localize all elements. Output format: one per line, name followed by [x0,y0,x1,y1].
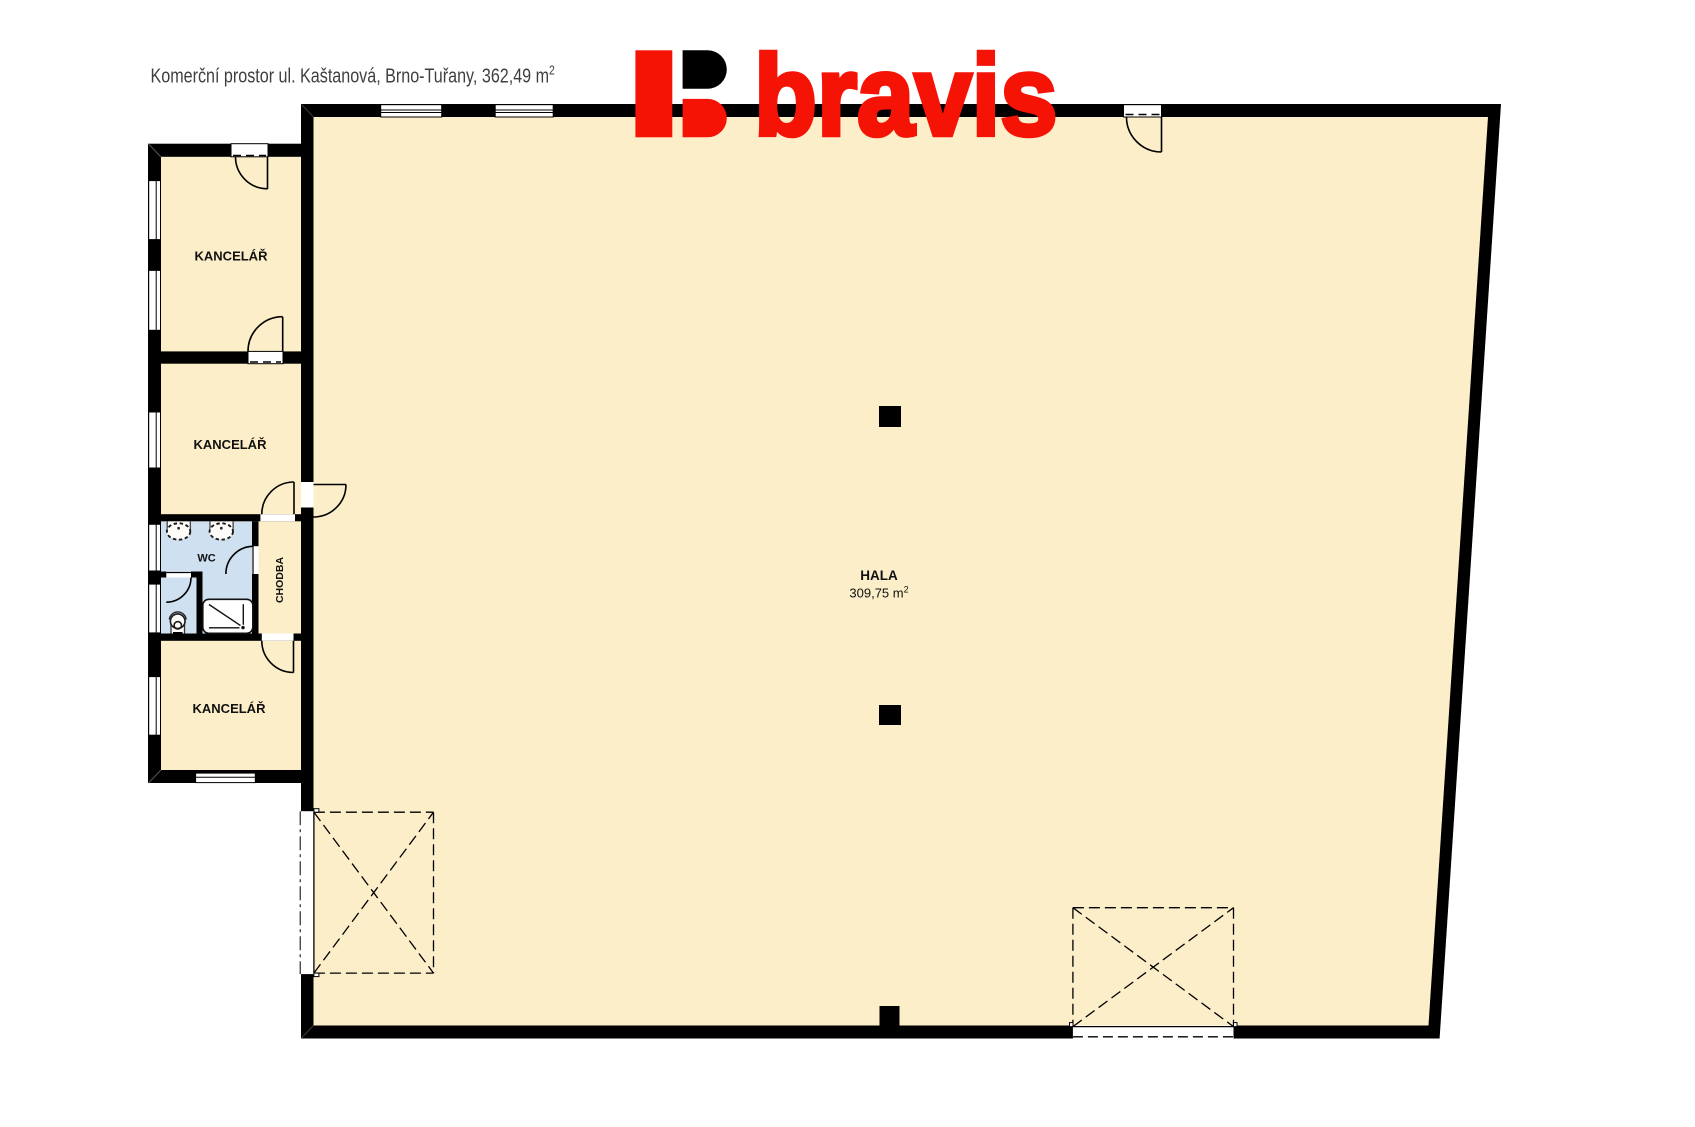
svg-text:WC: WC [197,553,215,565]
svg-text:HALA: HALA [860,568,898,583]
svg-text:KANCELÁŘ: KANCELÁŘ [193,701,267,716]
svg-text:309,75 m2: 309,75 m2 [849,585,908,601]
svg-text:Komerční prostor ul. Kaštanová: Komerční prostor ul. Kaštanová, Brno-Tuř… [151,62,555,87]
svg-text:KANCELÁŘ: KANCELÁŘ [194,437,268,452]
svg-text:bravis: bravis [754,33,1058,160]
svg-text:CHODBA: CHODBA [274,557,286,603]
svg-text:KANCELÁŘ: KANCELÁŘ [195,249,269,264]
